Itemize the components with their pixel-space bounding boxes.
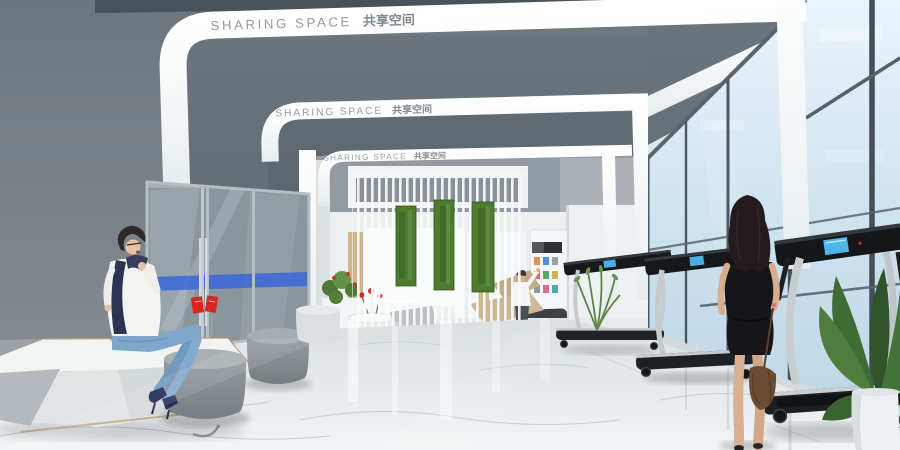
door-handle[interactable]: [205, 238, 207, 326]
arch2-sign-zh: 共享空间: [392, 102, 432, 116]
far-interior: [314, 156, 650, 350]
bracelet: [772, 303, 776, 307]
shoe: [753, 443, 763, 449]
smile: [136, 251, 140, 254]
door-stile: [252, 188, 255, 346]
pot-rim: [852, 388, 900, 396]
building-reflection: [826, 150, 884, 162]
red-door-sign: [191, 296, 204, 313]
hand: [138, 262, 146, 270]
arch1-sign-zh: 共享空间: [363, 12, 415, 29]
leg: [738, 355, 740, 447]
scene-canvas: SHARING SPACE 共享空间 SHARING SPACE 共享空间 SH…: [0, 0, 900, 450]
door-stile: [201, 186, 204, 348]
hand: [105, 305, 112, 312]
floor-reflection: [392, 322, 398, 414]
arch3-sign-en: SHARING SPACE: [323, 152, 407, 163]
interior-rendering: SHARING SPACE 共享空间 SHARING SPACE 共享空间 SH…: [0, 0, 900, 450]
floor-reflection: [348, 320, 358, 402]
arch3-sign-zh: 共享空间: [414, 150, 446, 161]
red-door-sign: [205, 295, 218, 312]
door-handle[interactable]: [199, 238, 201, 326]
moss-panels: [396, 200, 494, 292]
